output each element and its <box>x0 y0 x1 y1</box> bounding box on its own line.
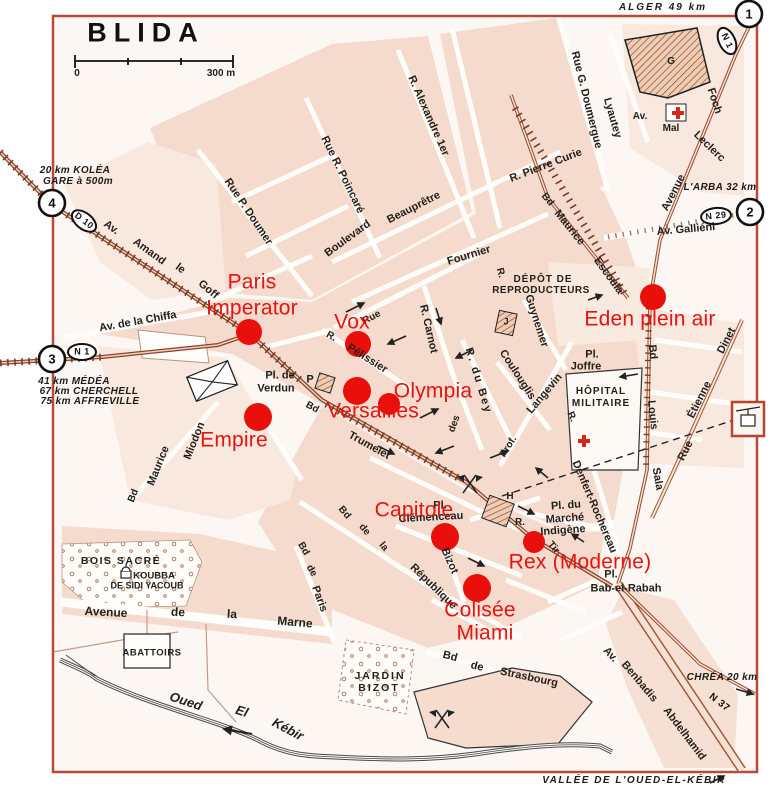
building-label-g: G <box>667 57 675 67</box>
cinema-dot-paris-imperator <box>236 319 262 345</box>
cinema-label-empire: Empire <box>200 430 268 451</box>
place-label-marche-1: Pl. du <box>551 499 582 512</box>
cinema-label-rex: Rex (Moderne) <box>509 552 652 573</box>
street-label-louis-bd: Bd <box>646 344 658 360</box>
exit-3: 3 <box>48 353 55 366</box>
cinema-label-versailles: Versailles <box>327 401 419 422</box>
exit-2: 2 <box>746 206 753 219</box>
place-label-koubba-2: DE SIDI YACOUB <box>110 582 183 591</box>
cinema-label-paris-1: Paris <box>228 272 277 293</box>
note-chrea: CHRÉA 20 km <box>687 673 758 683</box>
place-label-koubba-1: KOUBBA <box>133 571 175 581</box>
street-label-marne-la: la <box>227 608 238 621</box>
note-affreville: 75 km AFFREVILLE <box>41 397 140 407</box>
exit-4: 4 <box>48 197 55 210</box>
map-title: BLIDA <box>87 20 205 47</box>
cinema-label-colisee: Colisée <box>444 600 515 621</box>
place-label-verdun-1: Pl. de <box>265 371 294 382</box>
note-kolea-2: GARE à 500m <box>43 177 113 187</box>
cinema-label-paris-2: Imperator <box>206 298 298 319</box>
scale-end: 300 m <box>207 69 235 79</box>
badge-n1-west: N 1 <box>74 348 90 357</box>
cinema-label-capitole: Capitole <box>375 500 454 521</box>
place-label-bois-sacre: BOIS SACRÉ <box>81 556 161 567</box>
street-label-tir-r: R. <box>515 518 525 528</box>
building-label-h: H <box>506 492 513 502</box>
cinema-label-miami: Miami <box>457 623 514 644</box>
street-label-marne-de: de <box>171 606 186 619</box>
street-label-av-lyautey: Av. <box>633 112 647 122</box>
note-larba: L'ARBA 32 km <box>684 183 757 193</box>
bois-sacre-park <box>62 540 202 608</box>
street-label-marne: Marne <box>277 614 313 629</box>
cable-car-icon <box>732 402 764 436</box>
note-kolea-1: 20 km KOLÉA <box>40 166 111 176</box>
building-label-j: J <box>503 318 508 327</box>
cinema-dot-empire <box>244 403 272 431</box>
place-label-joffre-pl: Pl. <box>585 350 598 361</box>
place-label-jardin-2: BIZOT <box>358 683 400 694</box>
place-label-hopital-1: HÔPITAL <box>576 387 626 397</box>
place-label-abattoirs: ABATTOIRS <box>122 648 181 658</box>
place-label-joffre: Joffre <box>571 362 602 373</box>
note-vallee: VALLÉE DE L'OUED-EL-KÉBIR <box>542 776 726 786</box>
street-label-mal: Mal <box>663 124 680 134</box>
exit-1: 1 <box>745 8 752 21</box>
place-label-depot-1: DÉPÔT DE <box>513 275 572 285</box>
place-label-bab: Bab-el-Rabah <box>591 584 662 595</box>
scale-zero: 0 <box>74 69 80 79</box>
cinema-dot-eden-plein-air <box>640 284 666 310</box>
cinema-label-olympia: Olympia <box>394 381 472 402</box>
cinema-label-eden: Eden plein air <box>584 309 715 330</box>
place-label-jardin-1: JARDIN <box>354 671 405 682</box>
place-label-hopital-2: MILITAIRE <box>572 399 630 409</box>
street-label-louis: Louis <box>645 400 659 430</box>
street-label-marne-avenue: Avenue <box>84 605 127 619</box>
note-alger: ALGER 49 km <box>619 3 707 13</box>
cinema-label-vox: Vox <box>334 312 370 333</box>
place-label-depot-2: REPRODUCTEURS <box>492 286 590 296</box>
place-label-verdun-2: Verdun <box>257 384 294 395</box>
blida-city-map: BLIDA 0 300 m ALGER 49 km 20 km KOLÉA GA… <box>0 0 770 800</box>
building-label-p: P <box>306 375 313 386</box>
